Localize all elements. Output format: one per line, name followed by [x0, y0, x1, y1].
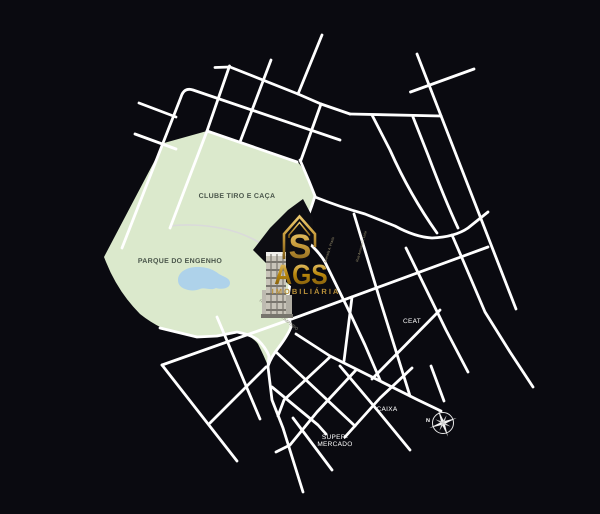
svg-text:CAIXA: CAIXA: [376, 406, 397, 413]
svg-text:N: N: [426, 418, 430, 424]
svg-text:CEAT: CEAT: [403, 318, 421, 325]
svg-text:AGS: AGS: [274, 259, 327, 290]
svg-text:PARQUE DO ENGENHO: PARQUE DO ENGENHO: [138, 258, 223, 265]
svg-text:CLUBE TIRO E CAÇA: CLUBE TIRO E CAÇA: [199, 193, 276, 200]
svg-text:MERCADO: MERCADO: [317, 441, 352, 448]
svg-text:IMOBILIÁRIA: IMOBILIÁRIA: [272, 287, 341, 296]
svg-text:SUPER-: SUPER-: [322, 434, 348, 441]
